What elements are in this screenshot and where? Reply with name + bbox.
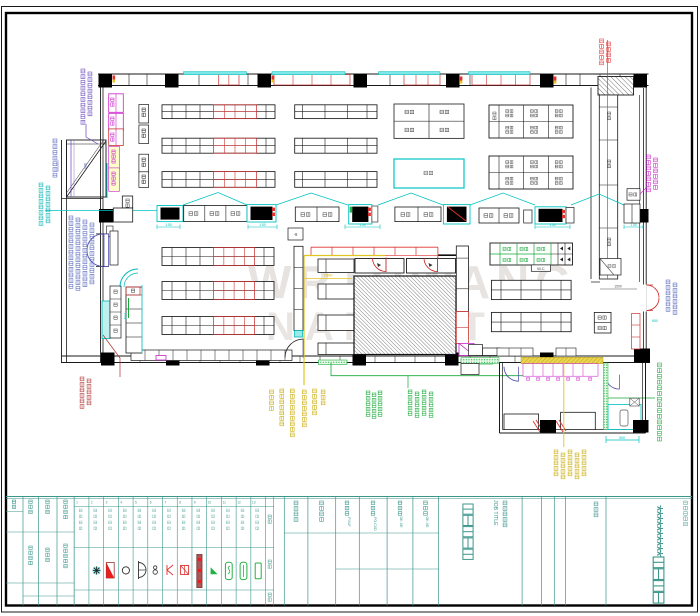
- svg-text:2: 2: [91, 501, 93, 505]
- svg-text:500: 500: [83, 163, 87, 169]
- svg-text:7500: 7500: [324, 273, 334, 278]
- svg-text:6: 6: [150, 501, 152, 505]
- svg-text:1.50: 1.50: [259, 223, 266, 227]
- svg-text:-9: -9: [294, 232, 298, 237]
- svg-text:W.C: W.C: [537, 266, 545, 271]
- svg-text:1.50: 1.50: [359, 223, 366, 227]
- svg-text:1500: 1500: [614, 285, 622, 289]
- svg-text:1.50: 1.50: [549, 223, 556, 227]
- svg-text:5: 5: [135, 501, 137, 505]
- svg-text:11: 11: [223, 501, 227, 505]
- svg-text:P.XLF: P.XLF: [347, 517, 351, 527]
- svg-text:12: 12: [237, 501, 241, 505]
- svg-text:1.03: 1.03: [123, 313, 127, 320]
- svg-text:OK.XE: OK.XE: [399, 517, 403, 529]
- svg-text:**********: **********: [647, 505, 667, 557]
- svg-text:3: 3: [106, 501, 108, 505]
- svg-text:1.50: 1.50: [630, 223, 637, 227]
- svg-text:8: 8: [179, 501, 181, 505]
- svg-text:13: 13: [252, 501, 256, 505]
- svg-text:500: 500: [619, 436, 625, 440]
- svg-text:9: 9: [194, 501, 196, 505]
- svg-text:OK.XE: OK.XE: [425, 517, 429, 529]
- svg-text:FO.CXD: FO.CXD: [373, 517, 377, 531]
- svg-text:JOB TITLE: JOB TITLE: [492, 500, 498, 526]
- svg-text:4: 4: [120, 501, 122, 505]
- svg-text:650: 650: [652, 319, 658, 323]
- svg-text:10: 10: [208, 501, 212, 505]
- svg-text:1: 1: [76, 501, 78, 505]
- svg-text:7: 7: [164, 501, 166, 505]
- svg-text:1.50: 1.50: [165, 223, 172, 227]
